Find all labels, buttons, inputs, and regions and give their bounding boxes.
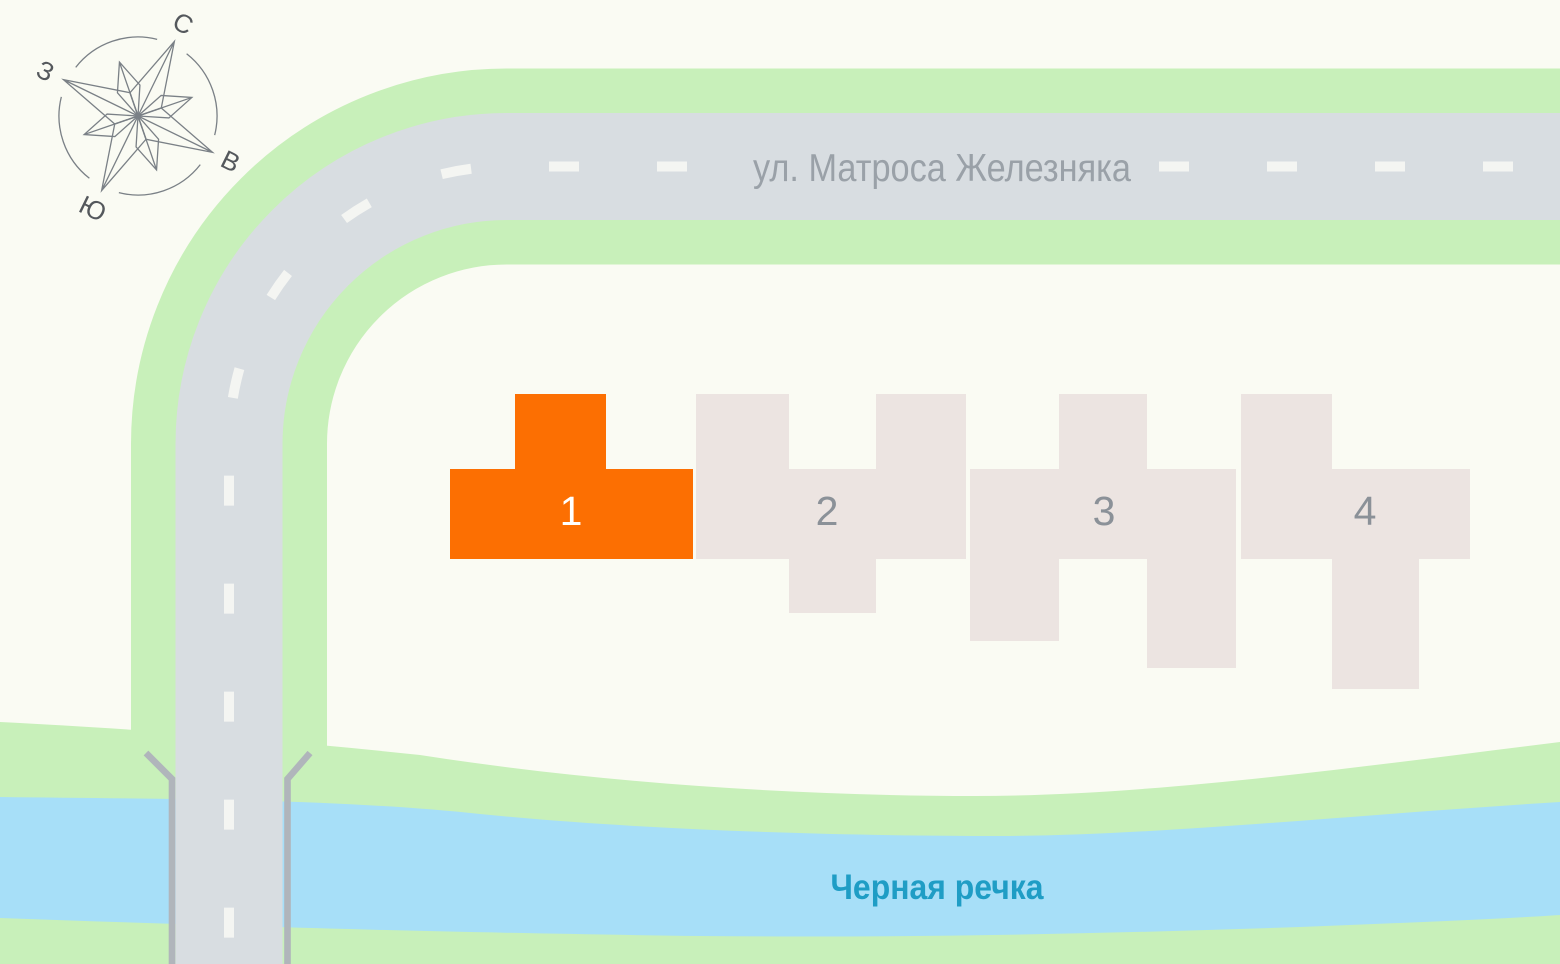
svg-text:4: 4 xyxy=(1354,488,1377,534)
svg-text:3: 3 xyxy=(1093,488,1116,534)
svg-text:Черная речка: Черная речка xyxy=(831,868,1044,907)
svg-text:ул. Матроса Железняка: ул. Матроса Железняка xyxy=(753,147,1131,190)
svg-text:1: 1 xyxy=(560,488,583,534)
svg-text:2: 2 xyxy=(816,488,839,534)
